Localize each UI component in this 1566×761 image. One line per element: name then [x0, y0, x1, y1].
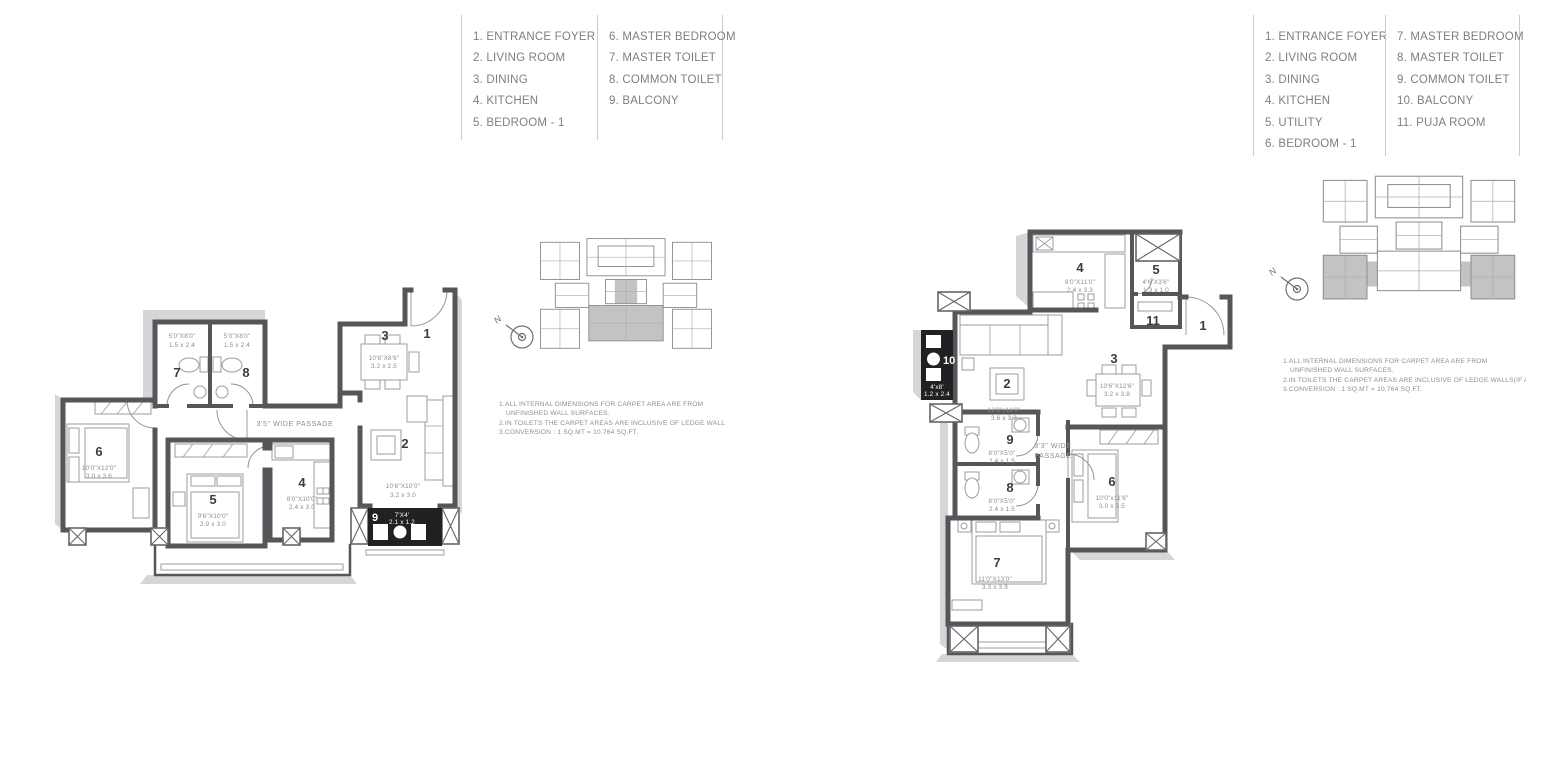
- shaft-box: [1136, 234, 1180, 261]
- room-dim-m: 3.2 x 2.5: [371, 363, 397, 370]
- legend-item: 6. BEDROOM - 1: [1265, 134, 1385, 155]
- floor-plan-a: 9 7'X4' 2.1 x 1.2 1 2 10'6"X10'0" 3.2 x …: [55, 278, 465, 668]
- note-line: 1.ALL INTERNAL DIMENSIONS FOR CARPET ARE…: [1283, 357, 1526, 366]
- kitchen-counter: [1033, 235, 1125, 252]
- room-number: 4: [1076, 260, 1084, 275]
- room-number: 4: [298, 475, 306, 490]
- dining-table: [361, 344, 407, 380]
- legend-item: 9. BALCONY: [609, 91, 722, 112]
- room-dim-m: 1.3 x 1.0: [1143, 287, 1169, 294]
- room-dim-ft: 8'0"X11'0": [1065, 279, 1095, 286]
- room-dim-m: 3.0 x 3.5: [1099, 503, 1125, 510]
- room-number: 2: [1003, 376, 1010, 391]
- room-dim-ft: 10'6"X8'6": [369, 355, 400, 362]
- puja-shelf: [1138, 302, 1172, 311]
- legend-plan-b: 1. ENTRANCE FOYER 2. LIVING ROOM 3. DINI…: [1253, 15, 1520, 156]
- room-dim-m: 3.3 x 3.9: [982, 584, 1008, 591]
- north-compass-icon: N: [1267, 265, 1308, 300]
- dining-table: [1096, 374, 1140, 406]
- legend-item: 8. MASTER TOILET: [1397, 48, 1519, 69]
- shaft-box: [351, 508, 368, 544]
- note-line: 3.CONVERSION : 1 SQ.MT = 10.764 SQ.FT.: [499, 428, 725, 437]
- legend-item: 1. ENTRANCE FOYER: [473, 27, 597, 48]
- north-label: N: [492, 313, 504, 325]
- room-number: 3: [381, 328, 388, 343]
- shaft-box: [1046, 626, 1070, 652]
- legend-item: 5. UTILITY: [1265, 113, 1385, 134]
- shaft-box: [1146, 533, 1166, 550]
- room-dim-ft: 4'6"X3'6": [1143, 279, 1170, 286]
- passage-label: 3'5" WIDE PASSAGE: [257, 421, 334, 428]
- legend-item: 4. KITCHEN: [473, 91, 597, 112]
- legend-item: 7. MASTER BEDROOM: [1397, 27, 1519, 48]
- room-number: 10: [943, 355, 955, 367]
- legend-item: 2. LIVING ROOM: [1265, 48, 1385, 69]
- room-dim-ft: 7'X4': [395, 512, 410, 519]
- room-dim-m: 2.9 x 3.0: [200, 521, 226, 528]
- room-dim-ft: 8'0"X5'0": [989, 498, 1016, 505]
- legend-b-column-1: 1. ENTRANCE FOYER 2. LIVING ROOM 3. DINI…: [1253, 15, 1385, 156]
- passage-label: 3'3" WIDE: [1034, 443, 1071, 450]
- room-dim-m: 2.4 x 3.3: [1067, 287, 1093, 294]
- legend-b-column-2: 7. MASTER BEDROOM 8. MASTER TOILET 9. CO…: [1385, 15, 1520, 156]
- room-number: 2: [401, 436, 408, 451]
- wc: [965, 433, 979, 453]
- room-dim-ft: 10'6"X10'0": [386, 483, 420, 490]
- room-number: 8: [1006, 480, 1013, 495]
- shaft-box: [950, 626, 978, 652]
- room-number: 5: [1152, 262, 1159, 277]
- shaft-box: [930, 404, 962, 422]
- north-label: N: [1267, 265, 1279, 277]
- sofa: [960, 315, 1060, 325]
- wc: [222, 358, 242, 372]
- room-dim-m: 3.2 x 3.8: [1104, 391, 1130, 398]
- north-compass-icon: N: [492, 313, 533, 348]
- room-dim-ft: 10'0"X12'0": [82, 465, 116, 472]
- legend-item: 3. DINING: [473, 70, 597, 91]
- floor-plan-b: 10 4'x8' 1.2 x 2.4 1 2 12'0"x11'0" 3.6 x…: [900, 222, 1240, 667]
- room-dim-ft: 11'0"X13'0": [978, 576, 1012, 583]
- room-dim-m: 1.2 x 2.4: [924, 391, 950, 398]
- legend-item: 6. MASTER BEDROOM: [609, 27, 722, 48]
- room-number: 1: [1199, 318, 1206, 333]
- key-plan-b: N: [1270, 168, 1530, 323]
- room-dim-ft: 9'6"X10'0": [198, 513, 229, 520]
- legend-plan-a: 1. ENTRANCE FOYER 2. LIVING ROOM 3. DINI…: [461, 15, 723, 140]
- room-dim-m: 1.5 x 2.4: [224, 342, 250, 349]
- room-dim-m: 3.2 x 3.0: [390, 492, 416, 499]
- washbasin: [1014, 471, 1026, 483]
- wc: [179, 358, 199, 372]
- room-dim-m: 3.6 x 3.3: [991, 415, 1017, 422]
- legend-item: 9. COMMON TOILET: [1397, 70, 1519, 91]
- room-number: 8: [242, 365, 249, 380]
- balcony-10: 10 4'x8' 1.2 x 2.4: [921, 330, 955, 400]
- room-number: 7: [173, 365, 180, 380]
- room-number: 11: [1146, 313, 1160, 328]
- note-line: 2.IN TOILETS THE CARPET AREAS ARE INCLUS…: [1283, 376, 1526, 385]
- balcony-9: 9 7'X4' 2.1 x 1.2: [368, 508, 442, 546]
- shaft-box: [938, 292, 970, 311]
- legend-item: 10. BALCONY: [1397, 91, 1519, 112]
- room-dim-m: 3.0 x 3.6: [86, 473, 112, 480]
- shaft-box: [442, 508, 459, 544]
- room-dim-m: 2.4 x 1.5: [989, 458, 1015, 465]
- legend-item: 4. KITCHEN: [1265, 91, 1385, 112]
- legend-a-column-2: 6. MASTER BEDROOM 7. MASTER TOILET 8. CO…: [597, 15, 723, 140]
- legend-item: 3. DINING: [1265, 70, 1385, 91]
- room-dim-ft: 8'0"X10'0": [287, 496, 318, 503]
- note-line: 3.CONVERSION : 1 SQ.MT = 10.764 SQ.FT.: [1283, 385, 1526, 394]
- floorplan-sheet: 1. ENTRANCE FOYER 2. LIVING ROOM 3. DINI…: [0, 0, 1566, 761]
- legend-a-column-1: 1. ENTRANCE FOYER 2. LIVING ROOM 3. DINI…: [461, 15, 597, 140]
- room-dim-ft: 4'x8': [930, 384, 944, 391]
- room-dim-ft: 5'0"X8'0": [169, 333, 196, 340]
- legend-item: 8. COMMON TOILET: [609, 70, 722, 91]
- washbasin: [216, 386, 228, 398]
- key-plan-a: N: [495, 225, 730, 375]
- room-dim-ft: 12'0"x11'0": [988, 407, 1021, 414]
- shaft-box: [69, 528, 86, 545]
- legend-item: 2. LIVING ROOM: [473, 48, 597, 69]
- room-number: 9: [372, 512, 378, 524]
- room-dim-ft: 5'0"X8'0": [224, 333, 251, 340]
- room-dim-m: 1.5 x 2.4: [169, 342, 195, 349]
- wc: [965, 478, 979, 498]
- room-number: 1: [423, 326, 430, 341]
- legend-item: 1. ENTRANCE FOYER: [1265, 27, 1385, 48]
- room-number: 9: [1006, 432, 1013, 447]
- room-dim-ft: 8'0"X5'0": [989, 450, 1016, 457]
- room-dim-m: 2.4 x 3.0: [289, 504, 315, 511]
- legend-item: 7. MASTER TOILET: [609, 48, 722, 69]
- room-number: 5: [209, 492, 216, 507]
- note-line: 2.IN TOILETS THE CARPET AREAS ARE INCLUS…: [499, 419, 725, 428]
- room-number: 6: [1108, 474, 1115, 489]
- washbasin: [194, 386, 206, 398]
- note-line: UNFINISHED WALL SURFACES.: [1283, 366, 1526, 375]
- notes-plan-b: 1.ALL INTERNAL DIMENSIONS FOR CARPET ARE…: [1283, 357, 1526, 395]
- note-line: 1.ALL INTERNAL DIMENSIONS FOR CARPET ARE…: [499, 400, 725, 409]
- passage-label: PASSAGE: [1034, 453, 1071, 460]
- shaft-box: [151, 528, 168, 545]
- room-dim-ft: 10'0"x11'6": [1096, 495, 1129, 502]
- room-dim-ft: 10'6"X12'6": [1100, 383, 1134, 390]
- room-number: 7: [993, 555, 1000, 570]
- notes-plan-a: 1.ALL INTERNAL DIMENSIONS FOR CARPET ARE…: [499, 400, 725, 438]
- shaft-box: [283, 528, 300, 545]
- room-number: 3: [1110, 351, 1117, 366]
- room-dim-m: 2.1 x 1.2: [389, 519, 415, 526]
- room-number: 6: [95, 444, 102, 459]
- note-line: UNFINISHED WALL SURFACES.: [499, 409, 725, 418]
- legend-item: 11. PUJA ROOM: [1397, 113, 1519, 134]
- room-dim-m: 2.4 x 1.5: [989, 506, 1015, 513]
- legend-item: 5. BEDROOM - 1: [473, 113, 597, 134]
